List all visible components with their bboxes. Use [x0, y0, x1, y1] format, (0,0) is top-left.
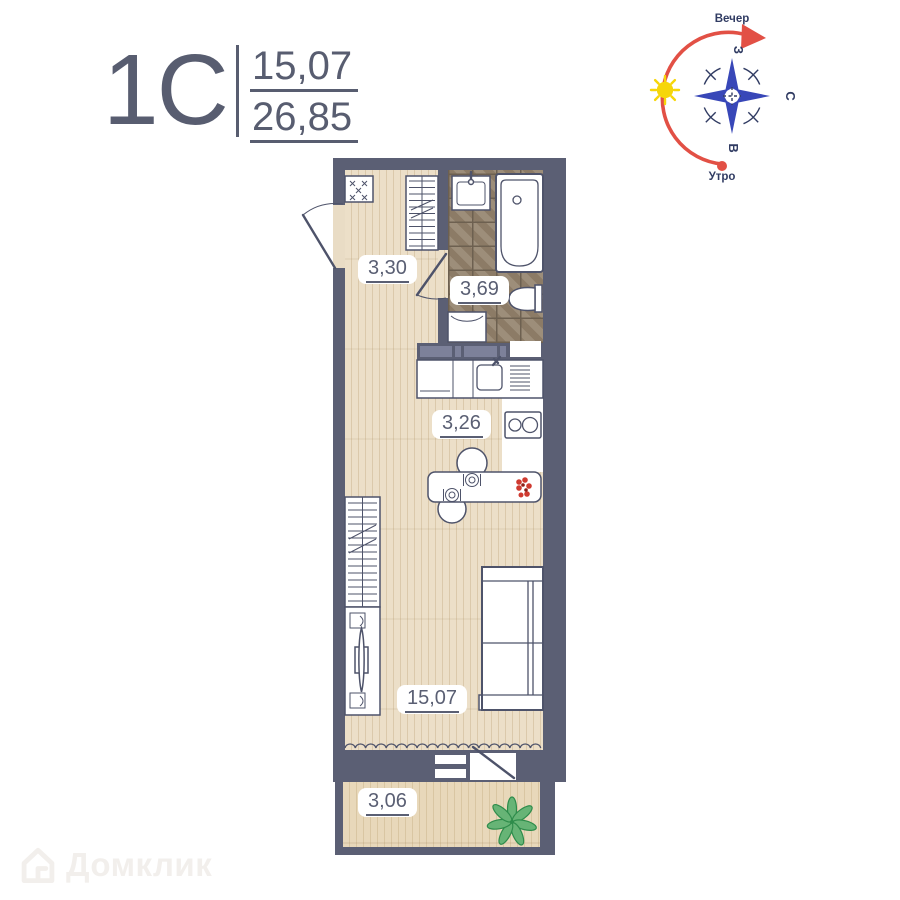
compass-rose-icon	[694, 58, 770, 134]
toilet-icon	[509, 285, 542, 312]
sun-icon	[651, 76, 679, 104]
vent-shaft-icon	[345, 176, 373, 202]
window-pane	[435, 769, 466, 778]
wardrobe-icon	[345, 497, 380, 607]
hall-wardrobe-icon	[406, 176, 438, 250]
drying-rack-icon	[510, 366, 530, 390]
room-label-balcony: 3,06	[358, 788, 417, 817]
watermark: Домклик	[18, 843, 212, 887]
morning-dot-icon	[717, 161, 727, 171]
compass-north-label: С	[783, 91, 798, 101]
curtain-wave	[345, 744, 541, 748]
kitchen-counter	[417, 357, 543, 398]
room-label-bathroom: 3,69	[450, 276, 509, 305]
cooktop-icon	[505, 412, 541, 438]
balcony-door	[435, 747, 516, 780]
bathroom-door	[417, 254, 446, 299]
dining-group	[428, 448, 541, 523]
domklik-logo-icon	[18, 843, 58, 887]
living-area-value: 15,07	[250, 46, 358, 92]
compass-morning-label: Утро	[709, 171, 736, 183]
furniture-layer	[293, 158, 566, 858]
washing-machine-icon	[448, 312, 486, 342]
watermark-brand: Домклик	[66, 846, 212, 884]
dining-table	[428, 472, 541, 502]
compass: Вечер Утро З С В	[648, 8, 816, 184]
floorplan-page: 1С 15,07 26,85	[0, 0, 900, 900]
total-area-value: 26,85	[250, 97, 358, 143]
bathtub-icon	[496, 174, 543, 272]
compass-west-label: З	[731, 46, 746, 54]
sofa-bed-icon	[479, 567, 543, 710]
title-divider	[236, 45, 239, 137]
window-pane	[435, 755, 466, 764]
compass-evening-label: Вечер	[715, 13, 750, 25]
room-label-hall: 3,30	[358, 255, 417, 284]
floorplan: 3,30 3,69 3,26 15,07 3,06	[333, 158, 566, 858]
area-values: 15,07 26,85	[250, 46, 358, 148]
plan-type-label: 1С	[103, 40, 227, 140]
bathroom-sink-icon	[452, 172, 490, 210]
compass-east-label: В	[726, 143, 741, 152]
room-label-kitchen: 3,26	[432, 410, 491, 439]
tv-unit	[345, 607, 380, 715]
room-label-living: 15,07	[397, 685, 467, 714]
entry-door	[303, 203, 345, 268]
plant-icon	[487, 797, 538, 847]
